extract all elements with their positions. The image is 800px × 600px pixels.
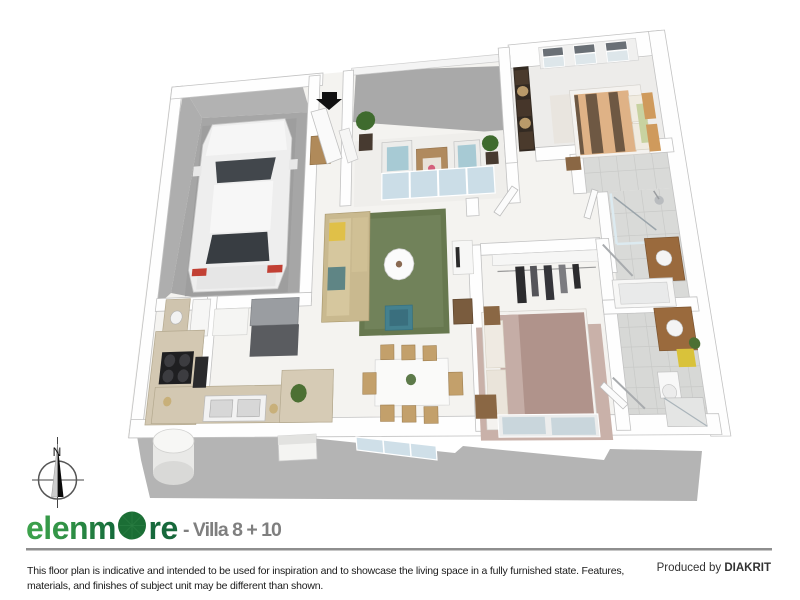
svg-text:elenm: elenm [26, 510, 116, 546]
svg-text:N: N [53, 445, 62, 459]
svg-text:Produced by DIAKRIT: Produced by DIAKRIT [657, 562, 771, 574]
svg-text:- Villa 8 + 10: - Villa 8 + 10 [183, 519, 282, 541]
svg-text:materials, and finishes of sub: materials, and finishes of subject unit … [27, 580, 323, 592]
svg-text:re: re [149, 510, 178, 546]
svg-text:This floor plan is indicative: This floor plan is indicative and intend… [27, 565, 624, 577]
